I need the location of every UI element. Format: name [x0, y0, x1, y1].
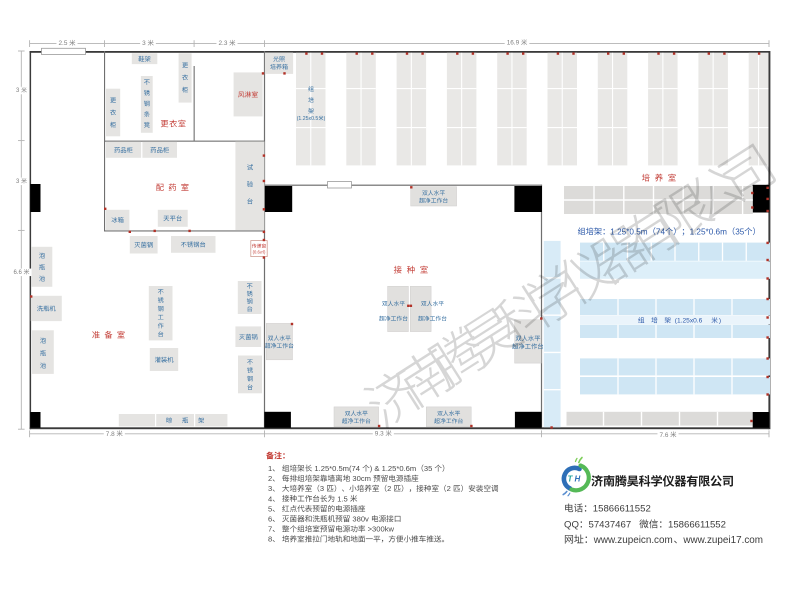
svg-text:2: 2	[268, 474, 272, 483]
svg-text:15866611552: 15866611552	[593, 504, 651, 515]
svg-text:www.zupeicn.com: www.zupeicn.com	[593, 535, 673, 546]
svg-text:6.6: 6.6	[14, 270, 23, 276]
svg-text:7: 7	[268, 525, 272, 534]
svg-text:2: 2	[447, 484, 451, 493]
svg-text:1: 1	[268, 464, 272, 473]
svg-text:2.3: 2.3	[219, 40, 228, 47]
svg-text:15866611552: 15866611552	[668, 520, 726, 531]
svg-text:2: 2	[387, 484, 391, 493]
svg-text:3: 3	[142, 40, 146, 47]
svg-text:3: 3	[268, 484, 272, 493]
svg-text:7.6: 7.6	[660, 432, 669, 439]
svg-text:16.9: 16.9	[507, 40, 520, 47]
svg-text:9.3: 9.3	[375, 431, 384, 438]
svg-text:3: 3	[320, 484, 324, 493]
svg-text:>300kw: >300kw	[368, 525, 395, 534]
svg-text:8: 8	[268, 535, 272, 544]
svg-text:(0.6: (0.6	[253, 250, 261, 255]
svg-text:QQ: QQ	[564, 520, 579, 531]
svg-text:): )	[719, 318, 721, 325]
svg-text:www.zupei17.com: www.zupei17.com	[682, 535, 763, 546]
svg-text:380v: 380v	[352, 515, 369, 524]
svg-text:2.5: 2.5	[59, 40, 68, 47]
svg-text:(1.25x0.5: (1.25x0.5	[297, 116, 319, 122]
svg-text:1.25*0.6m: 1.25*0.6m	[382, 464, 417, 473]
svg-text:&: &	[374, 464, 379, 473]
svg-text:5: 5	[268, 504, 272, 513]
svg-text:35: 35	[735, 227, 745, 236]
svg-text:7.8: 7.8	[106, 431, 115, 438]
svg-text:(1.25x0.6: (1.25x0.6	[675, 318, 703, 325]
svg-text:): )	[324, 116, 326, 122]
svg-text:6: 6	[268, 515, 272, 524]
svg-text:57437467: 57437467	[589, 520, 632, 531]
svg-text:4: 4	[268, 494, 272, 503]
svg-text:30cm: 30cm	[352, 474, 371, 483]
svg-text:H: H	[575, 475, 581, 484]
svg-text:1.25*0.5m(74: 1.25*0.5m(74	[314, 464, 360, 473]
svg-text:35: 35	[424, 464, 432, 473]
svg-text:1.5: 1.5	[337, 494, 348, 503]
